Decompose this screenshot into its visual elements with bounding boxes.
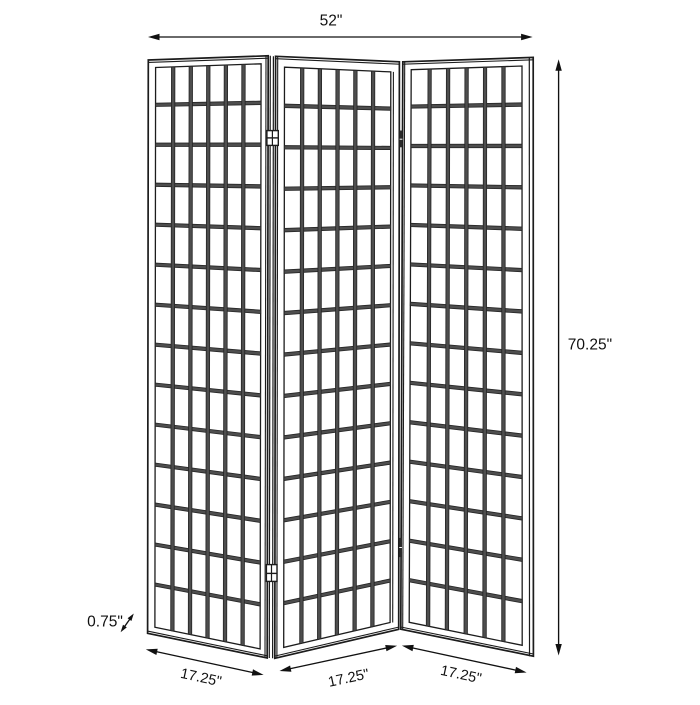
svg-text:52": 52" xyxy=(320,12,343,29)
svg-text:70.25": 70.25" xyxy=(568,336,612,353)
svg-text:0.75": 0.75" xyxy=(87,614,123,631)
